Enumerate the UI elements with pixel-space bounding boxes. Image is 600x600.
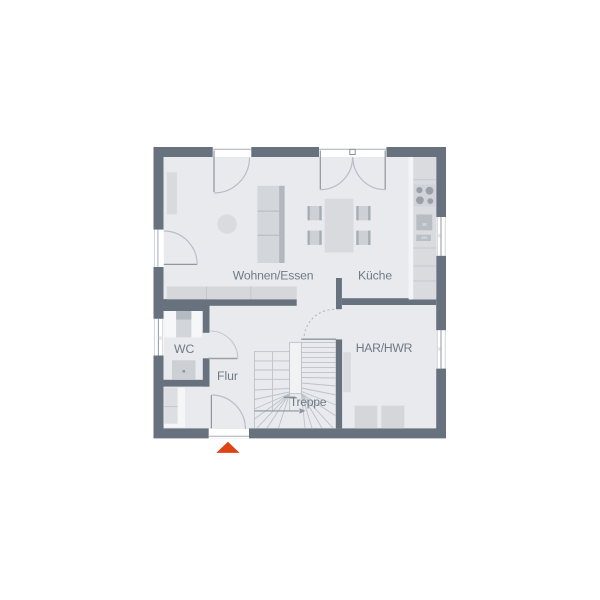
- svg-text:HAR/HWR: HAR/HWR: [356, 341, 413, 355]
- svg-text:Flur: Flur: [217, 369, 238, 383]
- svg-text:Treppe: Treppe: [290, 395, 327, 409]
- svg-text:Küche: Küche: [358, 269, 392, 283]
- svg-text:WC: WC: [174, 342, 195, 356]
- svg-text:Wohnen/Essen: Wohnen/Essen: [233, 269, 314, 283]
